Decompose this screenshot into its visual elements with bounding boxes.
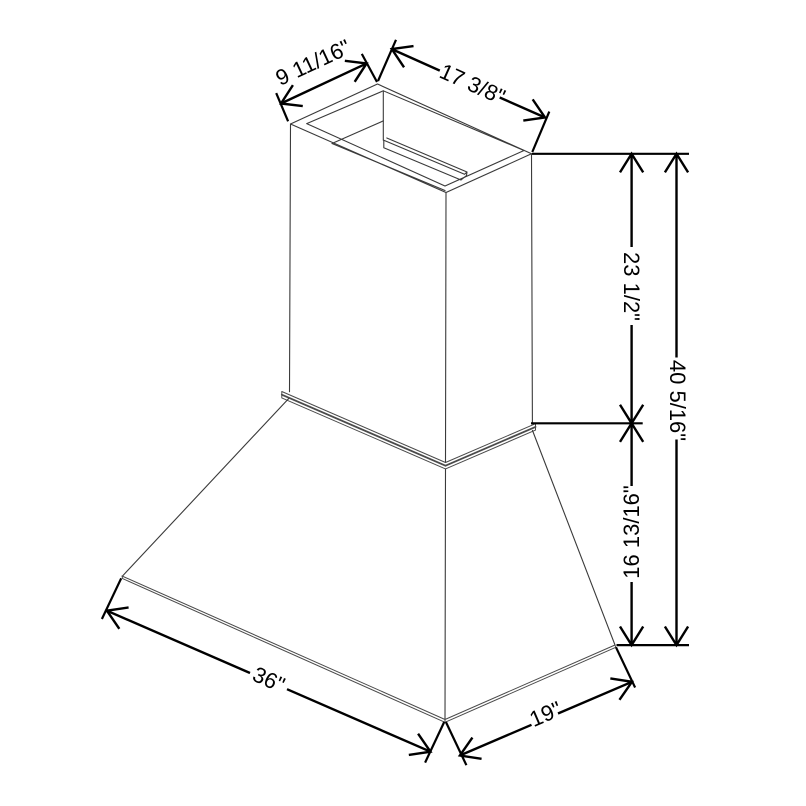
svg-text:19": 19" bbox=[526, 696, 566, 732]
svg-text:9 11/16": 9 11/16" bbox=[272, 34, 355, 90]
svg-text:17 3/8": 17 3/8" bbox=[436, 58, 509, 109]
svg-text:40 5/16": 40 5/16" bbox=[665, 360, 690, 441]
svg-text:36": 36" bbox=[249, 661, 289, 697]
svg-text:16 13/16": 16 13/16" bbox=[619, 485, 644, 578]
svg-text:23 1/2": 23 1/2" bbox=[619, 252, 644, 321]
